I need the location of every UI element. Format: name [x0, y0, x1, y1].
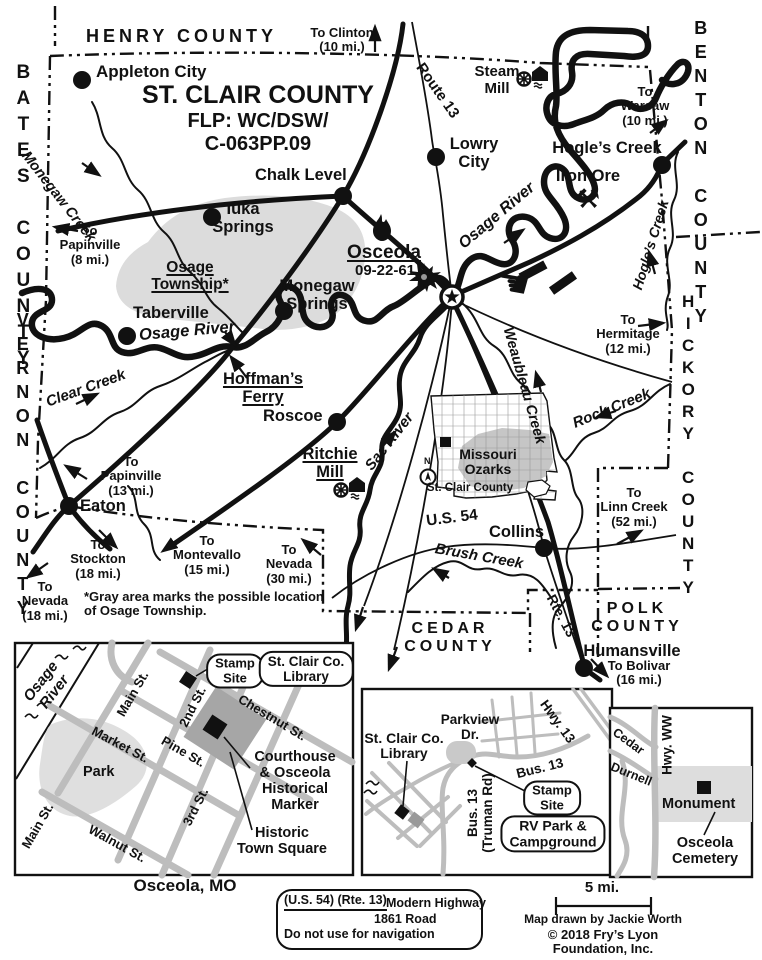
dir-clinton: To Clinton (10 mi.) — [310, 26, 373, 55]
dir-stockton: To Stockton (18 mi.) — [70, 538, 126, 581]
dir-montevallo: To Montevallo (15 mi.) — [173, 534, 241, 577]
map-subtitle1: FLP: WC/DSW/ — [187, 110, 328, 132]
town-dot-hogles-creek — [653, 156, 671, 174]
legend-modern-label: Modern Highway — [386, 897, 486, 911]
county-cedar: CEDAR COUNTY — [404, 620, 496, 655]
flame-icon — [373, 214, 391, 241]
inset3-hwy-ww: Hwy. WW — [661, 715, 676, 775]
town-hogles-creek: Hogle’s Creek — [552, 139, 661, 157]
inset3-cemetery: Osceola Cemetery — [672, 836, 738, 868]
town-dot-humansville — [575, 659, 593, 677]
county-benton: BENTON COUNTY — [690, 18, 710, 330]
dir-hermitage: To Hermitage (12 mi.) — [596, 313, 660, 356]
mo-inset-county: St. Clair County — [427, 482, 513, 495]
dir-nevada30: To Nevada (30 mi.) — [266, 543, 312, 586]
inset2-stamp-site: Stamp Site — [523, 780, 581, 815]
legend-note: Do not use for navigation — [284, 928, 435, 942]
town-dot-roscoe — [328, 413, 346, 431]
town-eaton: Eaton — [80, 497, 126, 515]
landmark-iron-ore: Iron Ore — [556, 167, 620, 185]
legend-modern-symbol: (U.S. 54) (Rte. 13) — [284, 894, 387, 911]
legend-1861-label: 1861 Road — [374, 913, 437, 927]
inset3-monument: Monument — [662, 797, 735, 813]
town-dot-taberville — [118, 327, 136, 345]
landmark-hoffmans-ferry: Hoffman’s Ferry — [223, 370, 303, 406]
county-polk: POLK COUNTY — [591, 600, 683, 635]
monument-square — [697, 781, 711, 794]
map-footnote: *Gray area marks the possible location o… — [84, 590, 324, 619]
pointing-hand-icon: ☚ — [493, 261, 533, 304]
map-canvas: HENRY COUNTY BATES COUNTY BENTON COUNTY … — [0, 0, 762, 960]
town-dot-lowry-city — [427, 148, 445, 166]
inset1-park: Park — [83, 765, 114, 781]
inset1-library: St. Clair Co. Library — [259, 651, 354, 687]
inset1-caption: Osceola, MO — [134, 877, 237, 896]
osceola-date: 09-22-61 — [355, 263, 415, 280]
town-monegaw-springs: Monegaw Springs — [279, 277, 354, 313]
credit-author: Map drawn by Jackie Worth — [524, 913, 682, 926]
inset1-courthouse: Courthouse & Osceola Historical Marker — [254, 750, 335, 814]
inset1-stamp-site: Stamp Site — [206, 653, 264, 688]
mo-inset-north: N — [424, 457, 431, 467]
landmark-osage-township: Osage Township* — [151, 259, 228, 293]
dir-nevada18: To Nevada (18 mi.) — [22, 580, 68, 623]
county-hickory: HICKORY COUNTY — [678, 292, 697, 600]
town-dot-appleton-city — [73, 71, 91, 89]
pickaxe-icon: ⚒ — [576, 186, 600, 213]
mo-inset-region: Missouri Ozarks — [459, 447, 517, 478]
dir-linn-creek: To Linn Creek (52 mi.) — [600, 486, 667, 529]
st-clair-marker — [440, 437, 451, 447]
map-subtitle2: C-063PP.09 — [205, 133, 311, 155]
dir-papinville13: To Papinville (13 mi.) — [101, 455, 162, 498]
town-iuka-springs: Iuka Springs — [212, 200, 273, 236]
inset1-town-square: Historic Town Square — [237, 826, 327, 858]
dir-papinville8: To Papinville (8 mi.) — [60, 224, 121, 267]
inset2-library: St. Clair Co. Library — [364, 731, 443, 762]
inset2-parkview: Parkview Dr. — [441, 713, 500, 743]
town-lowry-city: Lowry City — [450, 135, 499, 171]
town-dot-chalk-level — [334, 187, 352, 205]
landmark-steam-mill: Steam Mill — [474, 64, 519, 97]
town-chalk-level: Chalk Level — [255, 166, 347, 184]
landmark-ritchie-mill: Ritchie Mill — [302, 445, 357, 481]
county-vernon: VERNON COUNTY — [12, 310, 32, 622]
dir-bolivar: To Bolivar (16 mi.) — [608, 659, 671, 688]
town-osceola: Osceola — [347, 243, 421, 264]
town-roscoe: Roscoe — [263, 407, 323, 425]
map-title: ST. CLAIR COUNTY — [142, 82, 374, 110]
town-appleton-city: Appleton City — [96, 63, 207, 82]
scale-label: 5 mi. — [585, 880, 619, 897]
steam-mill-icon — [518, 66, 549, 88]
dir-warsaw: To Warsaw (10 mi.) — [621, 85, 670, 128]
credit-copyright: © 2018 Fry’s Lyon Foundation, Inc. — [524, 928, 683, 957]
inset2-rv-park: RV Park & Campground — [500, 815, 605, 852]
inset2-truman: Bus. 13 (Truman Rd) — [466, 773, 496, 853]
hogles-creek-path — [666, 152, 678, 330]
town-collins: Collins — [489, 523, 544, 541]
county-henry: HENRY COUNTY — [86, 27, 277, 47]
town-dot-collins — [535, 539, 553, 557]
town-dot-eaton — [60, 497, 78, 515]
town-taberville: Taberville — [133, 304, 209, 322]
